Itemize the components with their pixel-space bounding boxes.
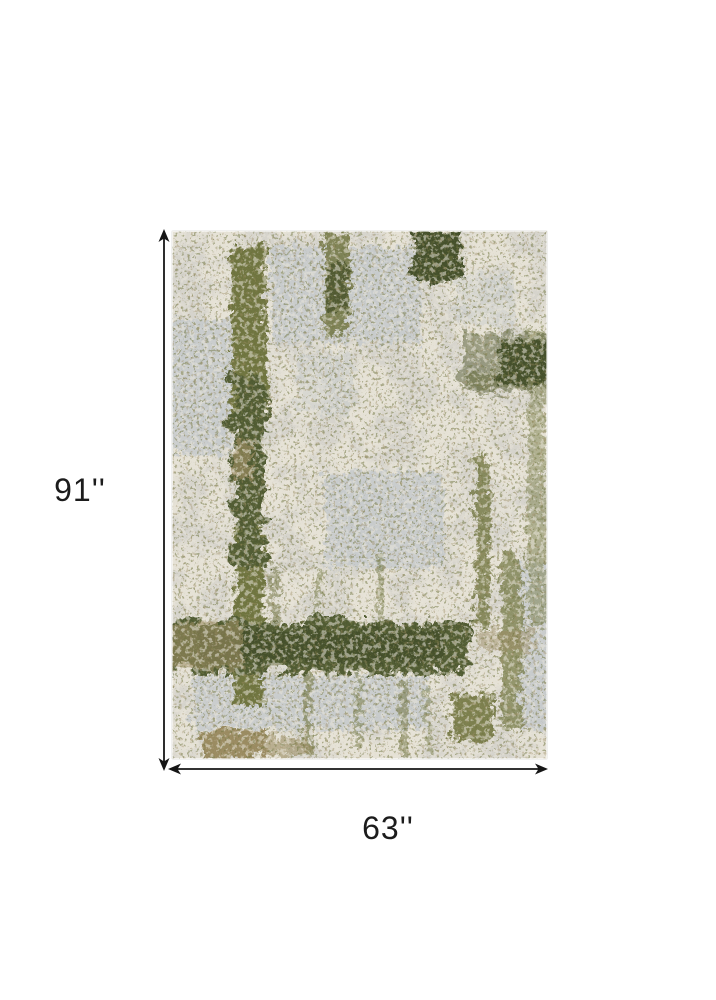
width-label: 63'' [328,810,448,846]
rug-image [172,231,547,759]
height-label: 91'' [28,472,132,508]
rug-grain [172,231,547,759]
rug-artwork-svg [172,231,547,759]
figure-canvas: 91'' 63'' [0,0,716,1000]
width-dimension-arrow [164,758,558,780]
height-dimension-arrow [153,226,175,774]
